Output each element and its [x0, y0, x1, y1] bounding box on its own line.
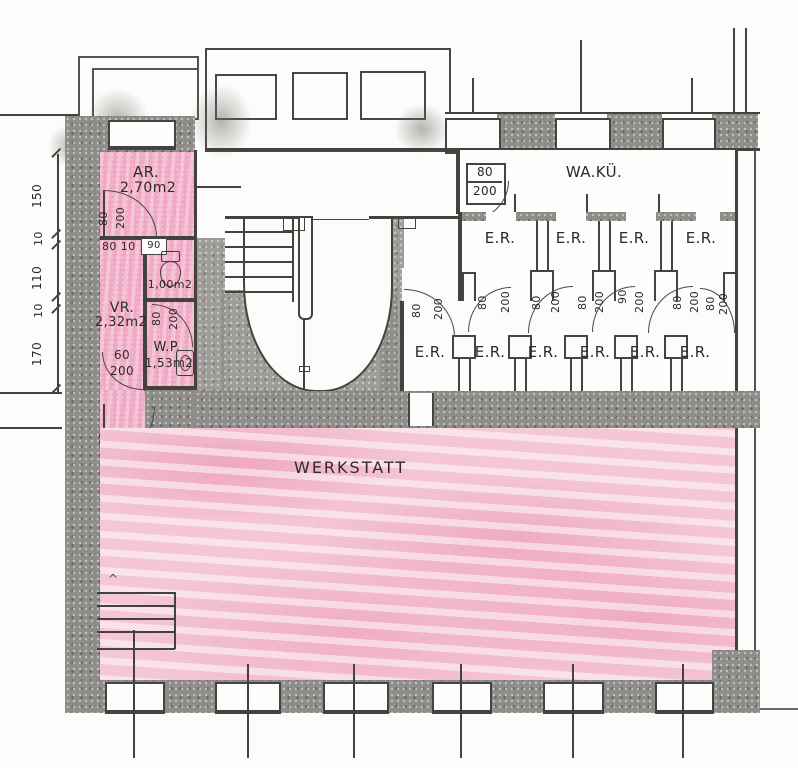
door-dim: 80: [476, 284, 489, 322]
adjacent-wall-line: [0, 392, 62, 394]
pencil-check-mark: ^: [108, 572, 118, 586]
door-dim: 200: [499, 281, 512, 323]
stair-railing-line: [303, 318, 305, 390]
room-werkstatt: [100, 428, 735, 682]
dimension-line: [57, 154, 59, 392]
dim-label: 10: [32, 300, 46, 322]
room-area: 2,70m2: [116, 180, 180, 196]
door-pier: [462, 272, 476, 304]
stair-edge: [174, 592, 176, 649]
room-name: E.R.: [665, 343, 725, 361]
wall: [456, 150, 460, 214]
stair-tread: [225, 291, 292, 293]
stair-tread: [97, 631, 175, 633]
extension-line: [691, 78, 693, 114]
door-dim: 200: [633, 281, 646, 323]
wall-recess: [313, 212, 369, 220]
window: [543, 682, 604, 714]
door-gap: [696, 212, 720, 221]
wall-pier: [712, 114, 758, 150]
room-name: AR.: [126, 163, 166, 181]
room-name: VR.: [102, 300, 142, 316]
room-area: 2,32m2: [92, 315, 150, 330]
left-exterior-wall: [65, 150, 100, 690]
room-name: E.R.: [541, 229, 601, 247]
door-dim: 80: [410, 294, 423, 328]
room-name: E.R.: [470, 229, 530, 247]
dim-label: 150: [30, 176, 46, 216]
stair-tread: [97, 618, 175, 620]
window: [323, 682, 389, 714]
window-axis-line: [353, 664, 355, 758]
window: [555, 118, 611, 152]
room-name: E.R.: [604, 229, 664, 247]
stair-tread: [97, 592, 175, 594]
leader-line: [197, 186, 241, 188]
pencil-smudge: [190, 84, 252, 158]
dim-label: 170: [30, 334, 46, 374]
adjacent-wall-line: [0, 427, 62, 429]
railing-post: [299, 366, 310, 372]
dim-label: 110: [30, 258, 46, 298]
door-dim: 200: [167, 302, 180, 336]
dim-tick: [51, 229, 61, 239]
room-area: 1,00m2: [144, 278, 196, 291]
window: [108, 120, 176, 150]
window-axis-line: [133, 630, 135, 758]
stair-tread: [225, 261, 292, 263]
window-axis-line: [682, 664, 684, 758]
stair-tread: [225, 276, 292, 278]
room-name: WA.KÜ.: [556, 163, 632, 181]
dim-tick: [51, 304, 61, 314]
skylight-window: [292, 72, 348, 120]
dim-label: 10: [32, 228, 46, 250]
extension-line: [472, 78, 474, 114]
door-dim: 200: [593, 281, 606, 323]
floor-plan: 150 10 110 10 170 80 200 80 10 90 1,00m2…: [0, 0, 798, 768]
door-dim: 80: [671, 284, 684, 322]
door-dim: 80: [466, 165, 504, 179]
door-dim: 80: [97, 204, 110, 234]
stair-shading: [197, 238, 225, 391]
window-axis-line: [572, 664, 574, 758]
window-axis-line: [460, 664, 462, 758]
wall-band: [195, 391, 760, 428]
room-name: E.R.: [671, 229, 731, 247]
door-dim: 200: [717, 284, 730, 324]
sink-basin-icon: [180, 355, 191, 371]
room-name: E.R.: [513, 343, 573, 361]
stair-railing: [298, 218, 313, 320]
door-dim: 200: [688, 281, 701, 323]
stair-edge: [97, 648, 175, 650]
extension-line: [580, 40, 582, 114]
stair-door-mark: [283, 218, 305, 231]
wall: [735, 391, 760, 428]
room-name: E.R.: [400, 343, 460, 361]
window: [655, 682, 714, 714]
dim-tick: [51, 292, 61, 302]
stair-tread: [225, 231, 292, 233]
wall-edge-line: [733, 28, 735, 114]
door-gap: [486, 212, 516, 221]
window: [432, 682, 492, 714]
wall-dim: 80 10: [102, 240, 142, 253]
window-axis-line: [247, 664, 249, 758]
stair-door-mark: [398, 218, 416, 229]
wall-pier: [607, 114, 662, 150]
wall-pier: [497, 114, 555, 150]
wall-edge-line: [745, 28, 747, 114]
passage-gap: [408, 393, 434, 426]
dim-tick: [51, 240, 61, 250]
door-dim: 80: [576, 284, 589, 322]
door-dim: 80: [530, 284, 543, 322]
window: [662, 118, 716, 152]
window: [105, 682, 165, 714]
door-dim: 200: [432, 290, 445, 328]
door-dim: 80: [704, 286, 717, 322]
door-gap: [626, 212, 656, 221]
door-dim: 90: [616, 281, 629, 313]
stair-tread: [225, 246, 292, 248]
window: [445, 118, 501, 152]
stair-tread: [97, 605, 175, 607]
pencil-smudge: [394, 104, 450, 154]
door-gap: [556, 212, 586, 221]
door-dim: 200: [114, 200, 127, 236]
door-dim: 80: [150, 305, 163, 333]
door-dim: 200: [549, 281, 562, 323]
room-name: WERKSTATT: [294, 458, 404, 477]
room-name: E.R.: [460, 343, 520, 361]
